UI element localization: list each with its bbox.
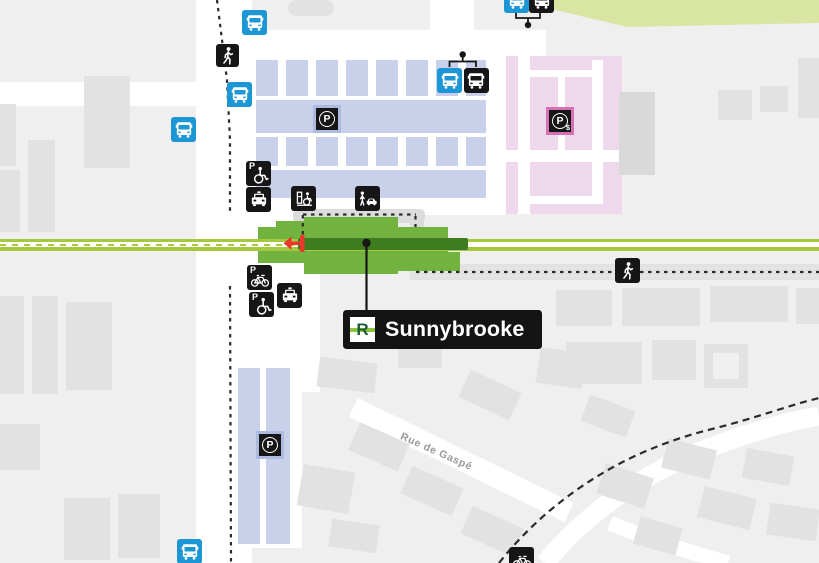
station-map: P P P P P$ P R Sunnybrooke Rue de Gaspé xyxy=(0,0,819,563)
building xyxy=(28,140,55,232)
accessible-parking-icon: P xyxy=(249,292,274,317)
building xyxy=(0,424,40,470)
boarding-assistance-icon xyxy=(291,186,316,211)
building xyxy=(0,170,20,232)
building xyxy=(556,290,612,326)
bus-icon xyxy=(177,539,202,563)
building xyxy=(316,357,377,394)
bus-icon xyxy=(464,68,489,93)
building xyxy=(661,438,717,479)
pedestrian-icon xyxy=(216,44,239,67)
parking-lot xyxy=(256,100,486,133)
exo-line-logo: R xyxy=(350,317,375,342)
parking-lane xyxy=(518,56,530,214)
building xyxy=(288,0,334,16)
green-area xyxy=(545,0,819,27)
building xyxy=(652,340,696,380)
building xyxy=(400,466,463,516)
station-platform xyxy=(398,252,460,271)
parking-lane xyxy=(592,60,603,204)
bus-icon xyxy=(504,0,529,13)
bus-icon xyxy=(227,82,252,107)
bike-parking-icon: P xyxy=(247,265,272,290)
parking-lane xyxy=(506,150,622,162)
building xyxy=(32,296,58,394)
parking-lot xyxy=(256,137,486,166)
building xyxy=(710,286,788,322)
building xyxy=(742,448,794,486)
pedestrian-icon xyxy=(615,258,640,283)
building xyxy=(458,370,521,421)
parking-lane xyxy=(518,196,603,204)
station-label: R Sunnybrooke xyxy=(343,310,542,349)
building xyxy=(0,296,24,394)
building xyxy=(297,464,356,514)
accessible-parking-icon: P xyxy=(246,161,271,186)
building xyxy=(64,498,110,560)
building xyxy=(718,90,752,120)
building xyxy=(766,503,819,542)
parking-lane xyxy=(518,70,603,77)
bus-icon xyxy=(171,117,196,142)
taxi-icon xyxy=(246,187,271,212)
building xyxy=(0,104,16,166)
paid-parking-icon: P$ xyxy=(546,107,574,135)
building xyxy=(697,486,757,530)
rail-line xyxy=(0,244,300,246)
building xyxy=(798,58,819,118)
parking-icon: P xyxy=(313,105,341,133)
building xyxy=(118,494,160,558)
building xyxy=(581,395,636,438)
building xyxy=(704,344,748,388)
bus-icon xyxy=(529,0,554,13)
drop-off-icon xyxy=(355,186,380,211)
building xyxy=(796,288,819,324)
rail-line-station-segment xyxy=(298,238,468,250)
building xyxy=(536,347,587,389)
station-name: Sunnybrooke xyxy=(385,317,525,342)
parking-icon: P xyxy=(256,431,284,459)
bus-icon xyxy=(437,68,462,93)
building xyxy=(328,519,379,553)
building xyxy=(84,76,130,168)
bus-icon xyxy=(242,10,267,35)
logo-line-letter: R xyxy=(356,321,368,338)
building xyxy=(66,302,112,390)
bike-icon xyxy=(509,547,534,563)
building xyxy=(619,92,655,175)
building xyxy=(622,288,700,326)
taxi-icon xyxy=(277,283,302,308)
building xyxy=(596,463,653,509)
building xyxy=(633,516,683,555)
building xyxy=(760,86,788,112)
